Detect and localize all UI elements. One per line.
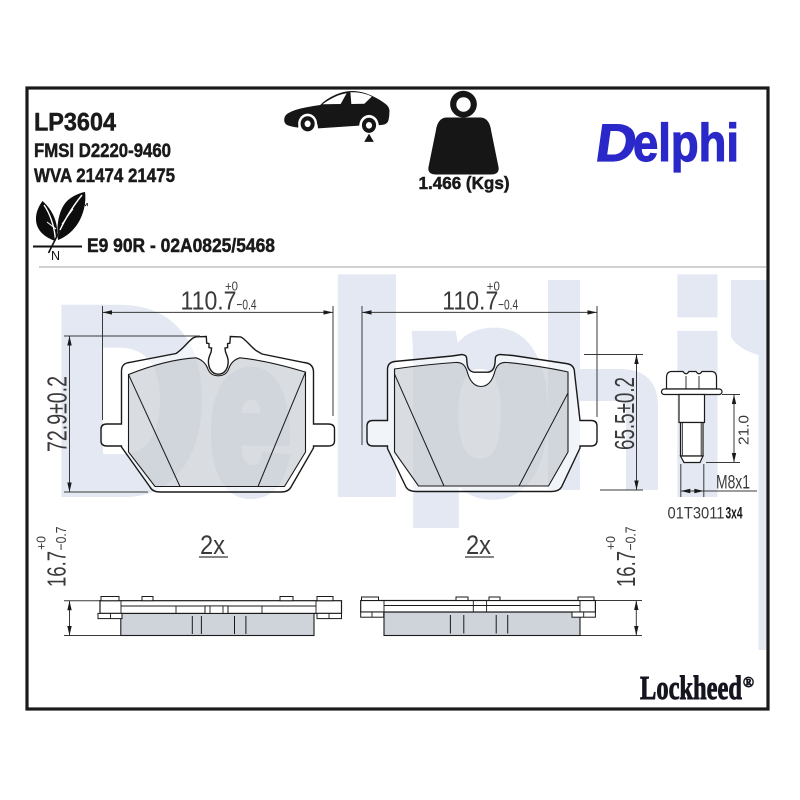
svg-text:WVA 21474 21475: WVA 21474 21475 xyxy=(34,165,175,187)
svg-text:®: ® xyxy=(743,675,754,691)
svg-text:1.466 (Kgs): 1.466 (Kgs) xyxy=(419,173,510,193)
svg-text:2x: 2x xyxy=(466,530,491,560)
svg-text:Lockheed: Lockheed xyxy=(640,670,742,707)
svg-text:01T3011: 01T3011 xyxy=(668,504,725,523)
svg-text:+0: +0 xyxy=(603,536,618,550)
svg-text:E9 90R - 02A0825/5468: E9 90R - 02A0825/5468 xyxy=(87,236,275,257)
svg-text:−0.7: −0.7 xyxy=(624,527,640,551)
svg-text:−0.4: −0.4 xyxy=(498,297,518,313)
svg-text:65.5±0.2: 65.5±0.2 xyxy=(609,377,640,450)
svg-text:3x4: 3x4 xyxy=(726,504,743,523)
svg-text:M8x1: M8x1 xyxy=(716,473,750,494)
svg-text:+0: +0 xyxy=(225,279,238,294)
svg-text:™: ™ xyxy=(79,202,89,213)
svg-text:+0: +0 xyxy=(34,536,49,550)
svg-text:FMSI D2220-9460: FMSI D2220-9460 xyxy=(34,140,171,162)
svg-text:−0.7: −0.7 xyxy=(54,527,70,551)
svg-text:LP3604: LP3604 xyxy=(34,109,116,137)
svg-text:21.0: 21.0 xyxy=(736,415,753,445)
svg-text:72.9±0.2: 72.9±0.2 xyxy=(42,376,73,452)
svg-text:16.7: 16.7 xyxy=(42,551,72,587)
svg-text:−0.4: −0.4 xyxy=(237,297,257,313)
svg-text:2x: 2x xyxy=(200,530,225,560)
svg-text:elphi: elphi xyxy=(633,114,739,173)
svg-text:16.7: 16.7 xyxy=(611,551,641,587)
svg-text:+0: +0 xyxy=(487,279,500,294)
svg-text:N: N xyxy=(51,249,60,263)
